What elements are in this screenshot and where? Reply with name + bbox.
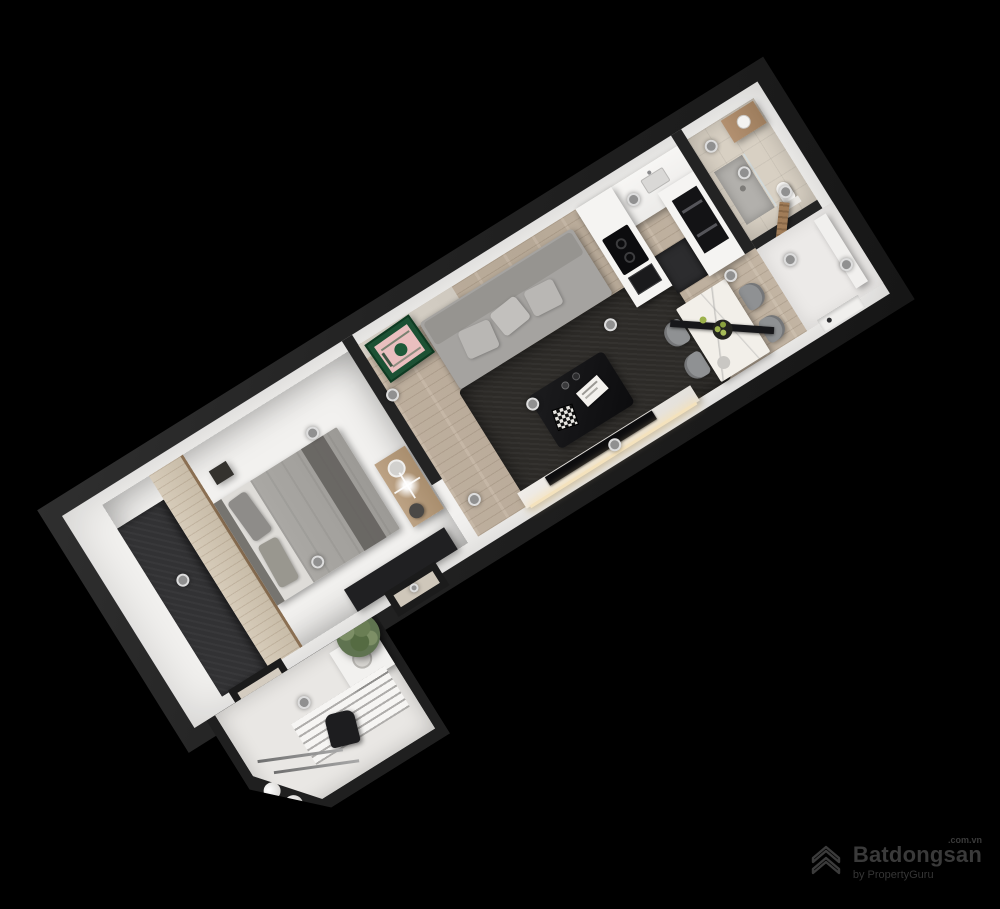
watermark-text: .com.vn Batdongsan by PropertyGuru (853, 844, 982, 881)
poster-title-text (381, 352, 393, 367)
watermark: .com.vn Batdongsan by PropertyGuru (808, 844, 982, 881)
watermark-domain: .com.vn (948, 835, 982, 845)
burner (622, 250, 637, 265)
oven-door-line (682, 199, 703, 214)
batdongsan-logo-icon (808, 845, 844, 881)
floorplan-scene: .com.vn Batdongsan by PropertyGuru (0, 0, 1000, 909)
watermark-brand: Batdongsan (853, 844, 982, 866)
rail-ball-lamp (281, 792, 307, 818)
oven-door-line (697, 223, 718, 238)
fruit (719, 329, 727, 337)
apartment-3d-plan (62, 81, 890, 728)
burner (614, 236, 629, 251)
watermark-byline: by PropertyGuru (853, 869, 982, 881)
